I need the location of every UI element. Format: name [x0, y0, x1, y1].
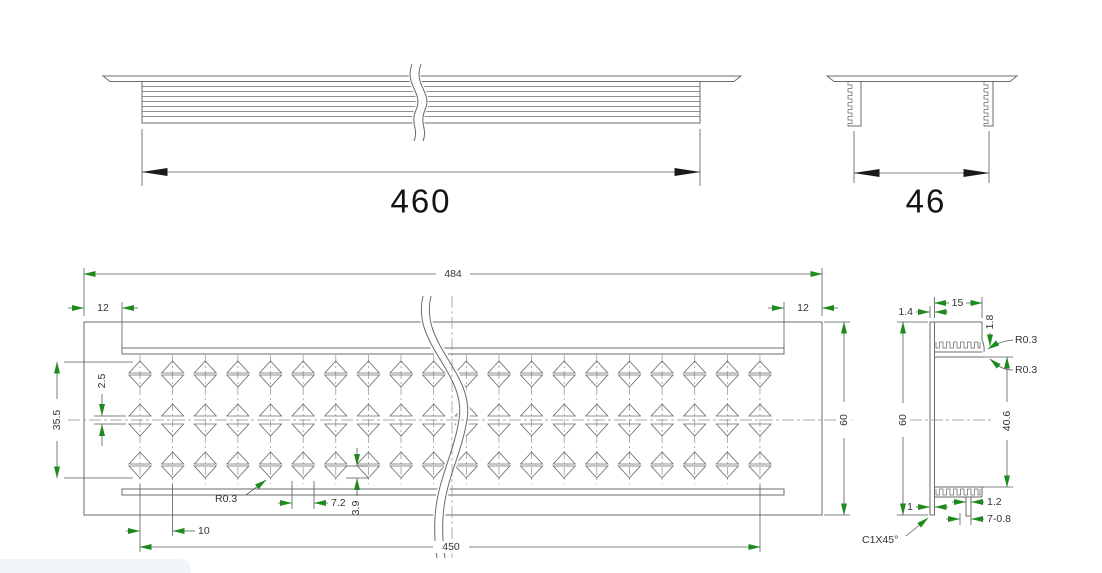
dim-pitch-label: 10: [198, 525, 210, 537]
dim-chamfer-label: C1X45°: [862, 534, 898, 546]
dim-overall-length-label: 460: [390, 183, 451, 220]
section-top-leg: [935, 322, 983, 340]
plan-view: 484 12 12 60 35.5 2.5 R0.3: [50, 267, 852, 558]
section-view: 1.4 15 1.8 R0.3 R0.3 40.6 60 1 C1X45°: [862, 297, 1037, 546]
dim-hole-width-label: 7.2: [331, 497, 346, 509]
dim-top-wall-label: 1.4: [898, 306, 913, 318]
side-flange: [103, 76, 741, 82]
dim-field-length-label: 450: [442, 541, 460, 553]
dim-section-height-label: 60: [897, 414, 909, 426]
end-left-leg-serration: [848, 82, 852, 127]
section-rib: [966, 497, 971, 516]
dim-field-height-label: 35.5: [51, 410, 63, 431]
corner-artifact: [0, 559, 191, 573]
end-view: 46: [827, 76, 1017, 220]
section-top-leg-serration: [936, 342, 980, 348]
dim-leg-thickness-label: 1.8: [984, 315, 996, 330]
dim-plan-width-label: 60: [838, 414, 850, 426]
dim-overall-label: 484: [444, 268, 462, 280]
end-right-leg-serration: [984, 82, 988, 127]
dim-bottom-wall-label: 1: [907, 501, 913, 513]
dim-hole-height-label: 3.9: [350, 501, 362, 516]
technical-drawing: 460 46 484 12: [0, 0, 1102, 573]
side-view: 460: [103, 64, 741, 220]
dim-rib-spec-label: 7-0.8: [987, 513, 1011, 525]
dim-leg-length-label: 15: [952, 297, 964, 309]
dim-width-label: 46: [906, 183, 947, 220]
section-bottom-leg-serration: [936, 489, 980, 495]
dim-center-gap-label: 2.5: [96, 374, 108, 389]
plan-top-slot: [122, 348, 784, 354]
dim-inner-height-label: 40.6: [1001, 411, 1013, 432]
dim-fillet-top-label: R0.3: [1015, 334, 1037, 346]
end-flange: [827, 76, 1017, 82]
section-flange: [930, 322, 935, 515]
dim-fillet-label: R0.3: [215, 493, 237, 505]
dim-fillet-bottom-label: R0.3: [1015, 364, 1037, 376]
dim-rib-width-label: 1.2: [987, 496, 1002, 508]
dim-inset-left-label: 12: [97, 302, 109, 314]
dim-inset-right-label: 12: [797, 302, 809, 314]
drawing-canvas: 460 46 484 12: [0, 0, 1102, 573]
